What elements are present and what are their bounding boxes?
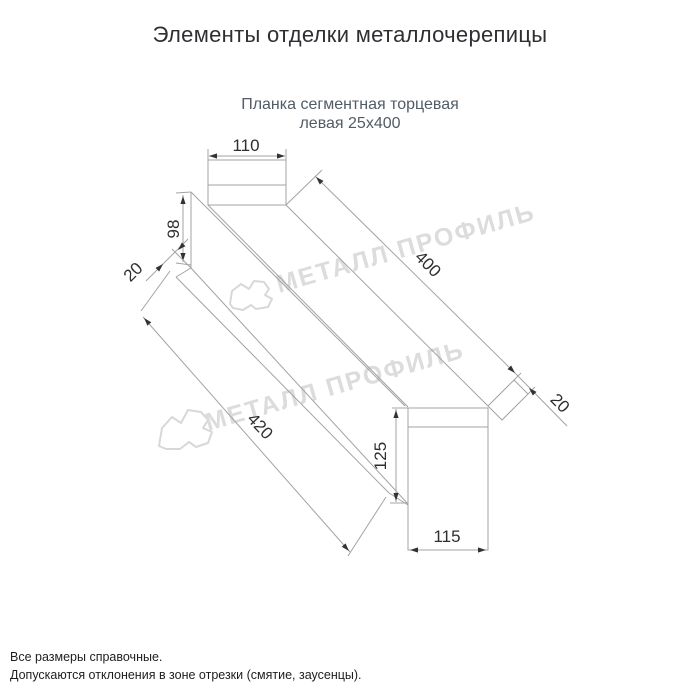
arrowhead — [277, 153, 285, 158]
arrowhead — [393, 410, 398, 418]
extension-line — [286, 170, 322, 205]
footer-note-line1: Все размеры справочные. — [10, 648, 362, 666]
dimension-20-bottom: 20 — [516, 374, 573, 426]
watermark-text: МЕТАЛЛ ПРОФИЛЬ — [273, 198, 539, 299]
long-edge-line — [191, 192, 405, 406]
dimension-110: 110 — [208, 136, 286, 160]
dimension-20-top: 20 — [120, 239, 191, 286]
arrowhead — [478, 547, 486, 552]
dimension-115: 115 — [410, 527, 486, 553]
extension-line — [390, 408, 408, 503]
extension-line — [141, 271, 170, 311]
watermark-text: МЕТАЛЛ ПРОФИЛЬ — [202, 336, 468, 437]
top-end-view-outline — [208, 160, 286, 205]
watermark-lower: МЕТАЛЛ ПРОФИЛЬ — [159, 336, 468, 449]
end-hem-extension — [514, 373, 521, 380]
footer-note-line2: Допускаются отклонения в зоне отрезки (с… — [10, 666, 362, 684]
dimension-line — [143, 317, 350, 552]
dimension-label-110: 110 — [232, 136, 259, 155]
technical-drawing: МЕТАЛЛ ПРОФИЛЬ МЕТАЛЛ ПРОФИЛЬ — [0, 0, 700, 700]
arrowhead — [410, 547, 418, 552]
end-hem-fold-outline — [488, 380, 528, 420]
arrowhead — [209, 153, 217, 158]
dimension-label-125: 125 — [371, 442, 390, 470]
extension-line — [348, 497, 386, 556]
dimension-label-20-bottom: 20 — [546, 390, 573, 417]
dimension-label-98: 98 — [164, 220, 183, 239]
end-tab-hem-fold — [176, 268, 191, 277]
long-edge-line — [208, 205, 408, 407]
arrowhead — [393, 493, 398, 501]
page: Элементы отделки металлочерепицы Планка … — [0, 0, 700, 700]
metall-profil-logo-watermark — [230, 281, 272, 310]
watermark-upper: МЕТАЛЛ ПРОФИЛЬ — [230, 198, 539, 310]
dimension-125: 125 — [371, 408, 408, 503]
arrowhead — [176, 243, 185, 252]
dimension-label-115: 115 — [433, 527, 460, 546]
dimension-label-20-top: 20 — [120, 259, 147, 286]
arrowhead — [180, 196, 185, 204]
footer-notes: Все размеры справочные. Допускаются откл… — [10, 648, 362, 684]
